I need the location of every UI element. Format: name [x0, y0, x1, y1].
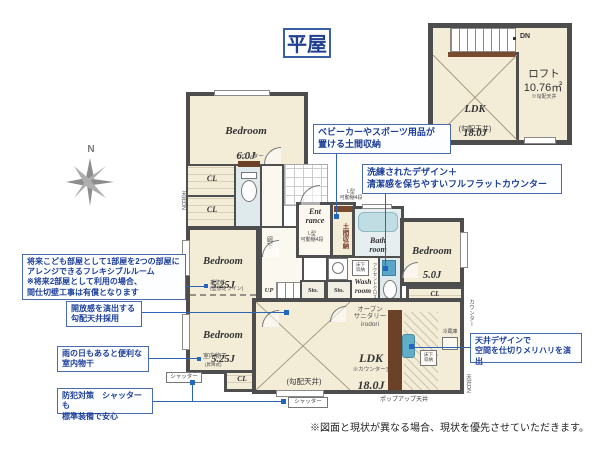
bedroom5-window	[460, 232, 468, 268]
compass-north-label: N	[84, 144, 98, 156]
footnote: ※図面と現状が異なる場合、現状を優先させていただきます。	[310, 423, 606, 435]
washing-machine-drum	[332, 262, 344, 274]
loft-stairs	[450, 28, 516, 52]
ldk-name: LDK	[359, 351, 383, 365]
connector-security-dot-left	[190, 380, 195, 385]
corridor-front	[260, 164, 284, 228]
callout-indoor-drying: 雨の日もあると便利な 室内物干	[57, 346, 149, 372]
connector-ceiling-dot	[284, 310, 289, 315]
popup-ceiling-label: ポップアップ天井	[372, 397, 436, 404]
loft-dn-dot	[513, 37, 516, 40]
ldk-label: LDK 18.0J	[350, 338, 392, 393]
connector-doma	[336, 154, 337, 216]
partition-assumed-line	[190, 294, 256, 296]
monohoshi-dot	[197, 357, 201, 361]
bedroom525a-name: Bedroom	[203, 256, 243, 267]
monohoshi-sub-label: (昇降式)	[205, 362, 233, 367]
shutter-left-label: シャッター	[166, 374, 202, 380]
page-title: 平屋	[283, 28, 331, 58]
ceiling-dn-right-label: 天井DN	[462, 366, 471, 400]
toilet2-bowl	[383, 280, 397, 299]
connector-doma-dot	[334, 214, 339, 219]
counter-right-label: カウンター	[465, 294, 474, 332]
bath-window	[362, 204, 392, 209]
callout-flat-counter: 洗練されたデザイン＋ 清潔感を保ちやすいフルフラットカウンター	[362, 164, 562, 194]
connector-counter-dot	[383, 266, 388, 271]
connector-security-v	[192, 383, 193, 402]
fridge-label: 冷蔵庫	[438, 330, 462, 336]
connector-flexible	[186, 286, 206, 287]
storage-1-label: Sto.	[302, 287, 324, 294]
bath-label: Bath room	[360, 236, 396, 254]
loft-name-label: ロフト	[520, 68, 568, 80]
callout-doma-storage: ベビーカーやスポーツ用品が 置ける土間収納	[313, 124, 451, 154]
bedroom5-name: Bedroom	[412, 246, 452, 257]
toilet1-tank	[241, 172, 257, 179]
bedroom525b-window	[182, 314, 190, 350]
callout-security-shutter: 防犯対策 シャッターも 標準装備で安心	[57, 388, 153, 414]
closet-top-2-label: CL	[196, 205, 228, 214]
connector-ceiling-design	[414, 347, 470, 348]
floorplan-page: 平屋 N DN LDK 18.0J (勾配天井) ロフト 10.76㎡ ※勾配天…	[0, 0, 607, 455]
connector-security-h	[153, 401, 283, 402]
connector-drying	[149, 358, 197, 359]
connector-ceiling	[142, 312, 286, 313]
shutter-bottom-label: シャッター	[288, 399, 328, 405]
bedroom6-window	[214, 90, 270, 96]
closet-bottom-label: CL	[230, 375, 254, 384]
ldk-window	[276, 390, 324, 397]
open-sanitary-label: オープン サニタリー irodori	[348, 306, 392, 328]
loft-area-label: 10.76㎡	[517, 82, 569, 95]
connector-ceiling-design-dot	[409, 344, 414, 349]
storage-2-label: Sto.	[328, 287, 350, 294]
bedroom525b-name: Bedroom	[203, 330, 243, 341]
callout-flexible-room: 将来こども部屋として1部屋を2つの部屋に アレンジできるフレキシブルルーム ※将…	[22, 254, 186, 300]
closet-bedroom5-label: CL	[424, 290, 446, 298]
loft-dn-label: DN	[517, 33, 533, 41]
fridge-space	[442, 337, 458, 350]
callout-sloped-ceiling: 開放感を演出する 勾配天井採用	[66, 301, 142, 327]
closet-top-1-label: CL	[196, 174, 228, 183]
bedroom6-name: Bedroom	[225, 125, 267, 137]
doma-label: 土間収納	[337, 217, 348, 255]
compass-icon	[64, 156, 116, 208]
l-shelf-label-entrance: L型 可動棚4段	[294, 232, 330, 244]
bedroom5-size: 5.0J	[423, 270, 441, 281]
ldk-ceiling-label: (勾配天井)	[272, 378, 336, 387]
toilet1-counter	[238, 161, 260, 167]
stairs-up-label: UP	[262, 287, 276, 294]
toilet1-bowl	[241, 180, 257, 202]
loft-window	[524, 137, 556, 144]
entrance-label: Ent rance	[299, 207, 331, 225]
partition-label: 垂壁芯 (壁想定ライン)	[210, 281, 260, 293]
ceiling-dn-left-label: 天井DN	[177, 182, 186, 218]
connector-security-dot-right	[281, 399, 286, 404]
kitchen-counter	[388, 310, 402, 390]
underfloor-storage-1-label: 床下 収納	[353, 262, 368, 272]
underfloor-storage-2-label: 床下 収納	[421, 352, 436, 362]
loft-area-note: ※勾配天井	[524, 95, 564, 101]
ldk-size: 18.0J	[358, 378, 385, 392]
connector-counter	[385, 194, 386, 268]
monohoshi-label: 室内物干	[203, 354, 239, 361]
loft-ldk-name: LDK	[465, 104, 486, 115]
callout-ceiling-design: 天井デザインで 空間を仕切りメリハリを演出	[470, 333, 582, 363]
bathtub	[358, 212, 398, 232]
